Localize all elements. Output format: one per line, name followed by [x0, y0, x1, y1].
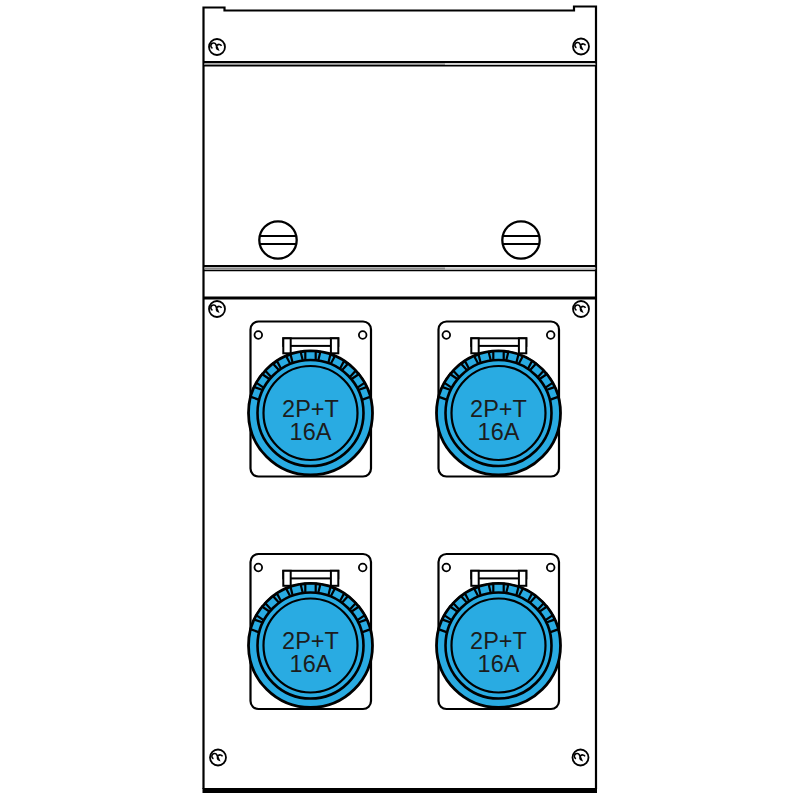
- socket-label-line2: 16A: [478, 419, 520, 445]
- socket-bottom-left: 2P+T 16A: [249, 554, 373, 709]
- security-screw-icon: [573, 39, 589, 55]
- slotted-screw-icon: [259, 221, 296, 258]
- socket-bottom-right: 2P+T 16A: [437, 554, 561, 709]
- cover-panel-divider: [204, 266, 597, 271]
- socket-label-line2: 16A: [290, 651, 332, 677]
- top-strip-divider: [204, 62, 597, 66]
- security-screw-icon: [209, 301, 225, 317]
- security-screw-icon: [573, 301, 589, 317]
- distribution-box-drawing: 2P+T 16A 2P+T 16A 2P+T 16A 2P+T 16A: [0, 0, 800, 800]
- socket-label-line2: 16A: [290, 419, 332, 445]
- security-screw-icon: [573, 750, 589, 766]
- security-screw-icon: [209, 39, 225, 55]
- socket-top-left: 2P+T 16A: [249, 322, 373, 477]
- socket-top-right: 2P+T 16A: [437, 322, 561, 477]
- security-screw-icon: [210, 750, 226, 766]
- slotted-screw-icon: [502, 221, 539, 258]
- enclosure-bottom-edge: [203, 788, 598, 793]
- socket-label-line2: 16A: [478, 651, 520, 677]
- drawing-canvas: 2P+T 16A 2P+T 16A 2P+T 16A 2P+T 16A: [0, 0, 800, 800]
